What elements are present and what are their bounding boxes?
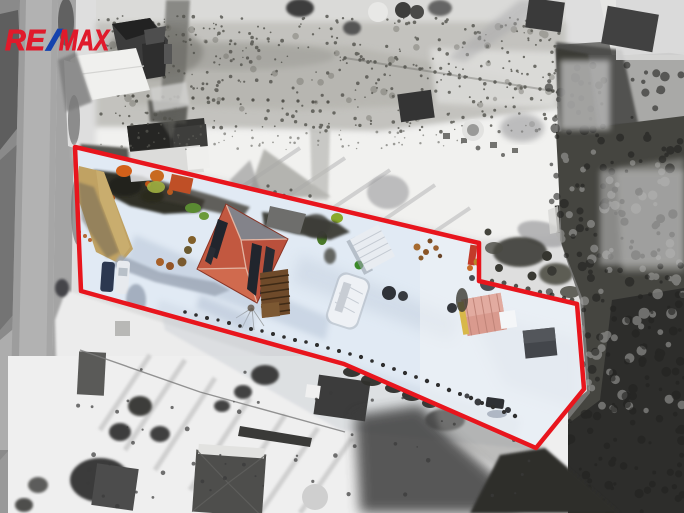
svg-text:MAX: MAX <box>59 25 110 57</box>
svg-text:RE: RE <box>5 25 47 57</box>
